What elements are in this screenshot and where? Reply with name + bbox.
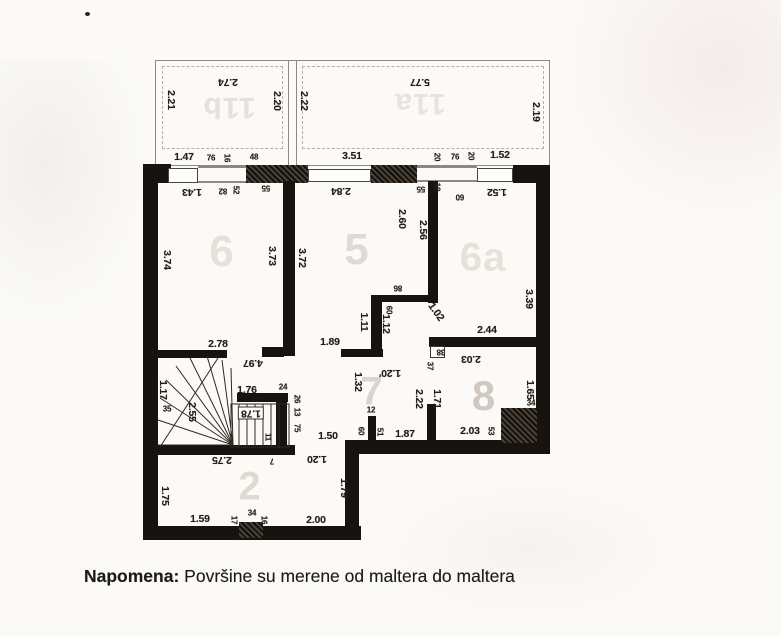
- dimension-label: 2.60: [396, 209, 408, 229]
- dimension-label: 1.59: [190, 513, 210, 525]
- dimension-label: 1.76: [237, 384, 257, 396]
- dimension-label: 3.72: [296, 248, 308, 268]
- dimension-label: 4.97: [243, 357, 263, 369]
- dimension-label: 3.39: [523, 289, 535, 309]
- dimension-label: 2.22: [413, 389, 425, 409]
- dimension-label: 1.17: [157, 380, 169, 400]
- wall-room5-room6a: [428, 181, 438, 303]
- dimension-label: 82: [219, 187, 228, 196]
- wall-room5-step-top: [371, 295, 428, 302]
- dimension-label: 2.75: [212, 454, 232, 466]
- dimension-label: 1.20: [307, 453, 327, 465]
- dimension-label: 2.56: [417, 220, 429, 240]
- dimension-label: 20: [433, 153, 442, 162]
- dimension-label: 3.74: [161, 250, 173, 270]
- note-label: Napomena:: [84, 566, 179, 586]
- window: [477, 168, 513, 182]
- dimension-label: 86: [394, 284, 403, 293]
- dimension-label: 1.65: [524, 380, 536, 400]
- dimension-label: 34: [248, 509, 257, 518]
- floor-plan: 2.742.212.205.772.222.191.477616483.5120…: [0, 0, 781, 560]
- dimension-label: 3.73: [266, 246, 278, 266]
- window: [168, 168, 198, 183]
- room-label: 6: [209, 227, 234, 277]
- dimension-label: 1.50: [318, 430, 338, 442]
- note-text: Površine su merene od maltera do maltera: [179, 566, 515, 586]
- dimension-label: 16: [223, 154, 232, 163]
- dimension-label: 51: [376, 428, 385, 437]
- dimension-label: 7: [270, 457, 274, 466]
- wall-room6-room5: [283, 181, 295, 356]
- wall-exterior-right: [536, 165, 550, 454]
- dimension-label: 16: [260, 516, 269, 525]
- dimension-label: 76: [207, 154, 216, 163]
- dimension-label: 2.55: [186, 402, 198, 422]
- dimension-label: 52: [232, 186, 241, 195]
- dimension-label: 2.19: [530, 102, 542, 122]
- wall-room6a-room8: [429, 337, 537, 347]
- dimension-label: 1.78: [238, 406, 264, 419]
- dimension-label: 18: [433, 183, 442, 192]
- dimension-label: 13: [293, 408, 302, 417]
- wall-pier: [371, 165, 417, 183]
- dimension-label: 2.74: [218, 76, 238, 88]
- dimension-label: 53: [487, 427, 496, 436]
- dimension-label: 75: [293, 424, 302, 433]
- dimension-label: 2.20: [271, 91, 283, 111]
- dimension-label: 1.71: [431, 389, 443, 409]
- dimension-label: 26: [293, 395, 302, 404]
- dimension-label: 1.11: [358, 312, 370, 331]
- shaft-block: [501, 408, 537, 443]
- stairs: [155, 355, 295, 455]
- dimension-label: 2.00: [306, 514, 326, 526]
- room-label: 11a: [394, 86, 445, 120]
- dimension-label: 2.44: [477, 324, 497, 336]
- dimension-label: 37: [426, 362, 435, 371]
- dimension-label: 2.03: [460, 425, 480, 437]
- wall-pier: [143, 164, 171, 183]
- dimension-label: 2.78: [208, 338, 228, 350]
- opening-line: [198, 166, 246, 168]
- note: Napomena: Površine su merene od maltera …: [84, 566, 515, 587]
- terrace-outline: [155, 60, 156, 168]
- dimension-label: 48: [250, 153, 259, 162]
- dimension-label: 17: [230, 516, 239, 525]
- dimension-label: 55: [262, 184, 271, 193]
- dimension-label: 1.87: [395, 428, 415, 440]
- terrace-divider: [296, 60, 297, 168]
- dimension-label: 34: [527, 399, 536, 408]
- dimension-label: 1.02: [425, 301, 446, 324]
- terrace-divider: [288, 60, 289, 168]
- room-label: 7: [360, 370, 383, 415]
- dimension-label: 55: [417, 185, 426, 194]
- wall-pier: [246, 165, 308, 183]
- room-label: 6a: [460, 236, 507, 281]
- dimension-label: 38: [437, 348, 446, 357]
- dimension-label: 1.75: [159, 486, 171, 506]
- dimension-label: 24: [279, 383, 288, 392]
- dimension-label: 20: [467, 152, 476, 161]
- dimension-label: 76: [451, 153, 460, 162]
- dimension-label: 11: [264, 433, 273, 441]
- room-label: 2: [238, 465, 261, 510]
- opening-line: [417, 180, 477, 182]
- dimension-label: 1.52: [490, 149, 510, 161]
- opening-line: [417, 166, 477, 168]
- dimension-label: 60: [385, 306, 394, 315]
- dimension-label: 1.43: [182, 186, 202, 198]
- dimension-label: 60: [456, 193, 465, 202]
- room-label: 11b: [202, 90, 255, 124]
- wall-exterior-left: [143, 167, 158, 540]
- dimension-label: 1.47: [174, 151, 194, 163]
- dimension-label: 2.22: [298, 91, 310, 111]
- dimension-label: 1.52: [487, 186, 507, 198]
- dimension-label: 2.03: [461, 353, 481, 365]
- window: [308, 169, 371, 182]
- room-label: 5: [344, 225, 369, 275]
- dimension-label: 60: [357, 427, 366, 436]
- terrace-outline: [549, 60, 550, 168]
- dimension-label: 1.12: [380, 314, 392, 334]
- opening-line: [198, 181, 246, 183]
- dimension-label: 2.21: [165, 90, 177, 110]
- scanned-floor-plan-page: { "note": { "label": "Napomena:", "text"…: [0, 0, 781, 636]
- dimension-label: 3.51: [342, 150, 362, 162]
- room-label: 8: [472, 372, 496, 420]
- scan-artifact: [85, 12, 90, 16]
- wall-room8-left: [427, 404, 436, 444]
- dimension-label: 2.84: [331, 185, 351, 197]
- terrace-outline: [155, 60, 550, 61]
- dimension-label: 1.89: [320, 336, 340, 348]
- dimension-label: 35: [163, 405, 172, 414]
- dimension-label: 1.79: [338, 478, 350, 498]
